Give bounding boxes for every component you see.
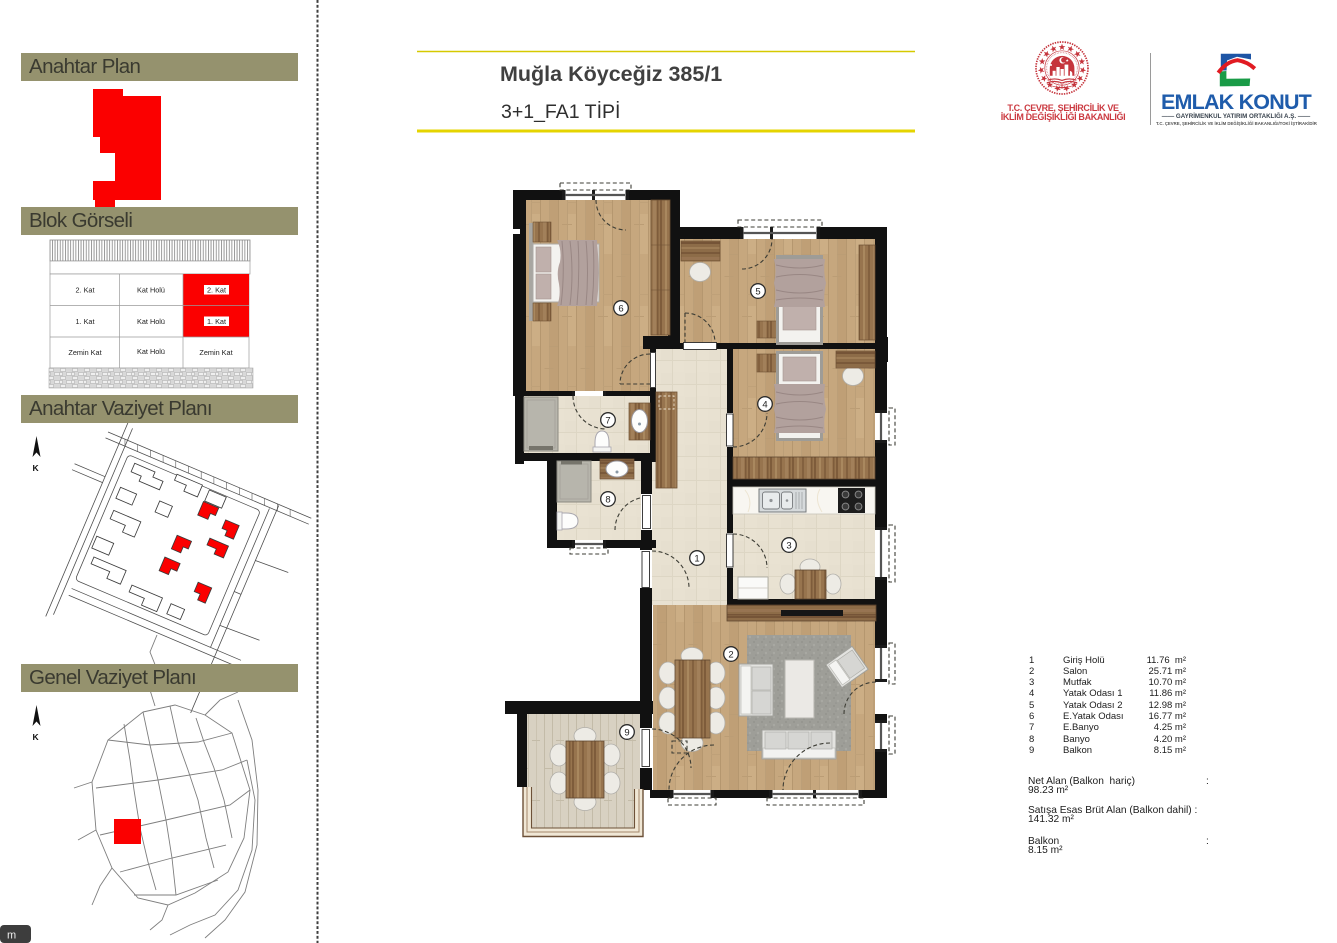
svg-text:Zemin Kat: Zemin Kat bbox=[199, 348, 232, 357]
svg-text:9: 9 bbox=[624, 728, 629, 739]
svg-text:4: 4 bbox=[762, 400, 767, 411]
svg-text:8: 8 bbox=[605, 495, 610, 506]
svg-text:1. Kat: 1. Kat bbox=[207, 317, 226, 326]
svg-text:Kat Holü: Kat Holü bbox=[137, 317, 165, 326]
svg-text:2. Kat: 2. Kat bbox=[75, 286, 94, 295]
svg-text:1. Kat: 1. Kat bbox=[75, 317, 94, 326]
svg-text:3: 3 bbox=[786, 541, 791, 552]
svg-text:2. Kat: 2. Kat bbox=[207, 286, 226, 295]
svg-text:2: 2 bbox=[728, 650, 733, 661]
svg-text:K: K bbox=[33, 463, 40, 473]
svg-text:1: 1 bbox=[694, 554, 699, 565]
svg-text:7: 7 bbox=[605, 416, 610, 427]
svg-text:5: 5 bbox=[755, 287, 760, 298]
svg-text:m: m bbox=[7, 930, 16, 942]
svg-text:K: K bbox=[33, 732, 40, 742]
svg-text:Kat Holü: Kat Holü bbox=[137, 286, 165, 295]
svg-text:6: 6 bbox=[618, 304, 623, 315]
svg-text:Kat Holü: Kat Holü bbox=[137, 347, 165, 356]
svg-text:Zemin Kat: Zemin Kat bbox=[68, 348, 101, 357]
